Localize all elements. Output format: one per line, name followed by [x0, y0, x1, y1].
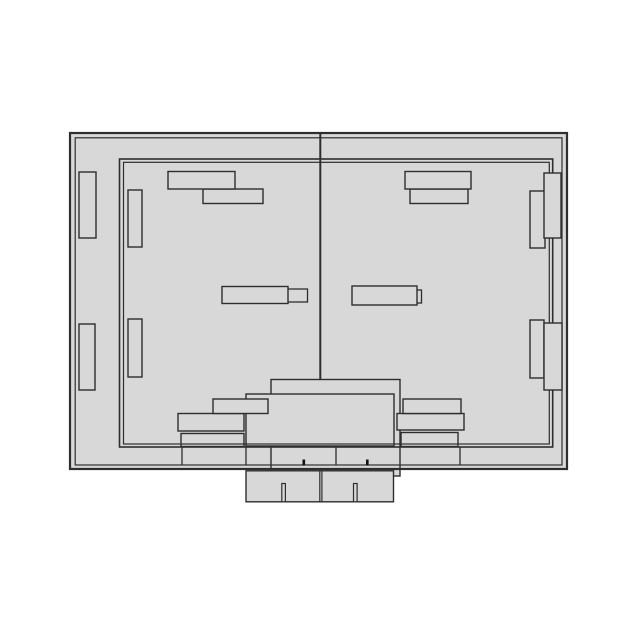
bracket-bottom-left-mid [178, 414, 244, 432]
base-tick-right [366, 460, 369, 466]
hinge-door-right-bottom [530, 320, 544, 378]
bracket-top-right-lower [410, 189, 468, 204]
handle-right [352, 286, 417, 305]
bracket-bottom-right-mid [397, 414, 464, 431]
terminal-slot-right [354, 484, 358, 502]
hinge-shell-left-bottom [79, 324, 95, 390]
hinge-door-left-top [128, 190, 142, 247]
technical-drawing [0, 0, 640, 640]
base-tick-left [303, 460, 306, 466]
handle-left [222, 287, 288, 304]
bracket-bottom-right-top [403, 399, 461, 414]
hinge-door-left-bottom [128, 319, 142, 377]
bracket-top-left-upper [168, 172, 235, 190]
hinge-door-right-top [530, 191, 545, 248]
hinge-shell-left-top [79, 172, 96, 238]
drawing-canvas [0, 0, 640, 640]
hinge-shell-right-top [544, 173, 561, 238]
bracket-top-left-lower [203, 189, 263, 204]
bracket-bottom-left-top [213, 399, 268, 414]
hinge-shell-right-bottom [544, 323, 562, 390]
bracket-top-right-upper [405, 172, 471, 190]
handle-left-end [286, 289, 308, 302]
terminal-slot-left [282, 484, 286, 502]
